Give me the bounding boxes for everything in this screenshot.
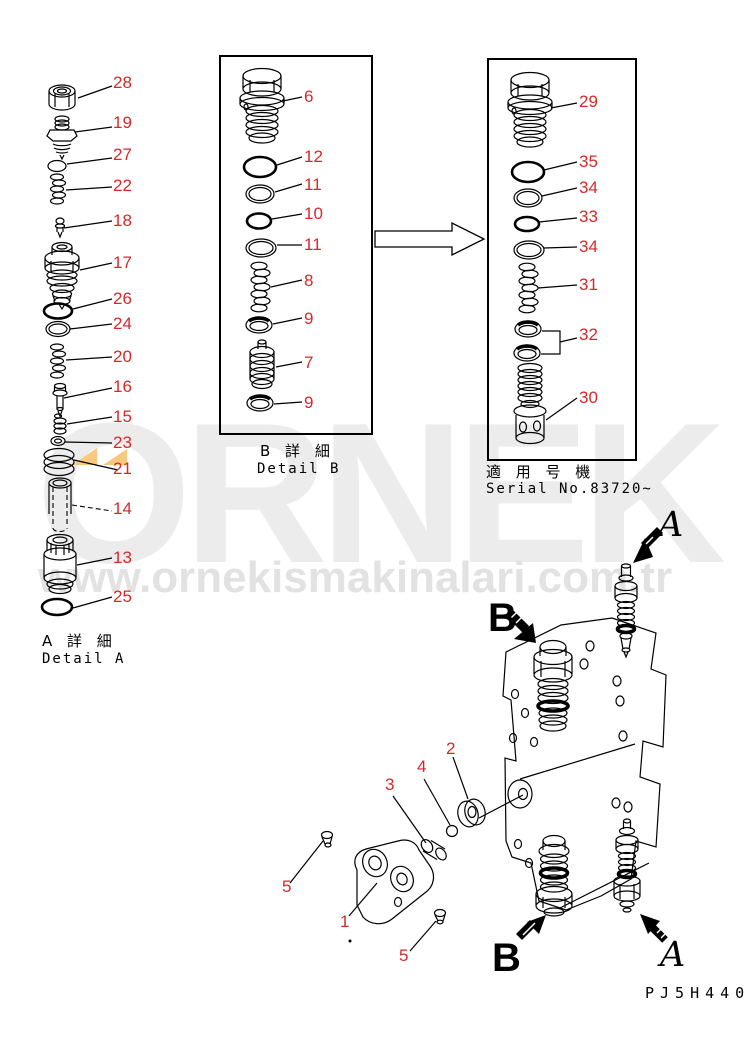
detail-a-caption-en: Detail A xyxy=(42,651,125,667)
part-label-16: 16 xyxy=(113,378,132,395)
part-label-2: 2 xyxy=(446,740,455,757)
part-label-18: 18 xyxy=(113,212,132,229)
part-label-35: 35 xyxy=(579,153,598,170)
part-label-8: 8 xyxy=(304,272,313,289)
serial-caption-local: 適 用 号 機 xyxy=(486,461,595,482)
part-label-5-right: 5 xyxy=(399,947,408,964)
part-label-4: 4 xyxy=(417,758,426,775)
plug-b-top-drawing xyxy=(534,641,572,732)
bolt-5-left-drawing xyxy=(322,832,333,848)
part-20-drawing xyxy=(51,344,66,378)
part-label-34-upper: 34 xyxy=(579,179,598,196)
ball-part-4-drawing xyxy=(447,826,458,837)
part-label-11-upper: 11 xyxy=(304,176,322,193)
part-label-29: 29 xyxy=(579,93,598,110)
part-label-5-left: 5 xyxy=(282,878,291,895)
part-28-drawing xyxy=(49,85,75,110)
detail-a-caption-local: A 詳 細 xyxy=(42,630,117,651)
part-label-10: 10 xyxy=(304,205,323,222)
part-11-upper-drawing xyxy=(246,185,274,203)
part-21-drawing xyxy=(44,449,74,476)
part-13-drawing xyxy=(44,535,76,594)
part-label-24: 24 xyxy=(113,315,132,332)
assembly-leader-lines xyxy=(290,757,523,951)
view-label-a-bottom: A xyxy=(660,938,685,973)
detail-a-leader-lines xyxy=(64,86,118,608)
part-label-9-lower: 9 xyxy=(304,394,313,411)
part-16-drawing xyxy=(53,384,67,417)
part-label-26: 26 xyxy=(113,290,132,307)
detail-b-caption-local: B 詳 細 xyxy=(260,440,335,461)
part-label-20: 20 xyxy=(113,348,132,365)
relief-valve-a-bottom-drawing xyxy=(614,819,640,912)
part-30-drawing xyxy=(514,364,546,444)
detail-a-drawing xyxy=(42,85,118,615)
part-label-12: 12 xyxy=(304,148,323,165)
part-label-9-upper: 9 xyxy=(304,310,313,327)
part-11-lower-drawing xyxy=(246,239,276,257)
part-label-6: 6 xyxy=(304,88,313,105)
pin-part-3-drawing xyxy=(419,837,449,862)
valve-body-drawing xyxy=(349,618,667,943)
part-10-drawing xyxy=(247,214,271,229)
detail-b-caption-en: Detail B xyxy=(257,461,340,477)
part-label-28: 28 xyxy=(113,74,132,91)
part-26-drawing xyxy=(44,304,72,319)
part-label-34-lower: 34 xyxy=(579,238,598,255)
part-14-drawing xyxy=(49,478,71,532)
part-19-drawing xyxy=(47,116,77,159)
part-25-drawing xyxy=(42,599,72,615)
part-label-7: 7 xyxy=(304,354,313,371)
part-12-drawing xyxy=(244,157,276,177)
part-label-23: 23 xyxy=(113,434,132,451)
part-14-leader-line xyxy=(72,505,112,511)
part-label-21: 21 xyxy=(113,460,132,477)
part-label-17: 17 xyxy=(113,254,132,271)
part-34-upper-drawing xyxy=(514,189,542,207)
part-33-drawing xyxy=(515,217,539,231)
drawing-code: PJ5H440 xyxy=(645,984,750,1002)
part-label-22: 22 xyxy=(113,177,132,194)
serial-section-leader-lines xyxy=(538,103,577,420)
plug-b-bottom-drawing xyxy=(536,836,572,917)
parts-diagram-page: ORNEK www.ornekismakinalari.com.tr xyxy=(0,0,755,1048)
transition-arrow xyxy=(375,223,484,255)
view-label-a-top: A xyxy=(658,508,683,543)
part-9-lower-drawing xyxy=(247,395,273,411)
end-cap-part-1-drawing xyxy=(355,840,434,924)
serial-caption-en: Serial No.83720~ xyxy=(486,481,653,497)
part-6-drawing xyxy=(240,69,284,144)
relief-valve-a-top-drawing xyxy=(615,564,637,657)
part-label-11-lower: 11 xyxy=(304,236,322,253)
part-8-drawing xyxy=(251,262,270,312)
part-22-drawing xyxy=(51,174,66,204)
part-32-drawing xyxy=(514,321,541,361)
part-label-15: 15 xyxy=(113,408,132,425)
part-label-27: 27 xyxy=(113,146,132,163)
part-label-30: 30 xyxy=(579,389,598,406)
part-29-drawing xyxy=(508,73,552,148)
detail-b-drawing xyxy=(240,69,302,412)
part-34-lower-drawing xyxy=(514,241,544,259)
part-label-32: 32 xyxy=(579,326,598,343)
part-label-33: 33 xyxy=(579,208,598,225)
part-label-19: 19 xyxy=(113,114,132,131)
part-9-upper-drawing xyxy=(246,317,272,333)
part-24-drawing xyxy=(46,322,70,337)
part-18-drawing xyxy=(56,218,65,237)
part-label-3: 3 xyxy=(385,776,394,793)
part-27-drawing xyxy=(48,161,66,172)
part-label-25: 25 xyxy=(113,588,132,605)
part-7-drawing xyxy=(250,340,274,389)
part-35-drawing xyxy=(512,162,544,182)
part-31-drawing xyxy=(519,263,538,313)
view-label-b-top: B xyxy=(488,598,517,638)
serial-section-drawing xyxy=(508,73,577,444)
grommet-part-2-drawing xyxy=(455,797,488,829)
view-label-b-bottom: B xyxy=(492,938,521,978)
part-label-14: 14 xyxy=(113,500,132,517)
assembly-drawing xyxy=(290,527,668,951)
part-23-drawing xyxy=(51,437,65,446)
part-17-drawing xyxy=(45,243,79,310)
part-label-31: 31 xyxy=(579,276,598,293)
part-label-13: 13 xyxy=(113,549,132,566)
part-label-1: 1 xyxy=(340,913,349,930)
